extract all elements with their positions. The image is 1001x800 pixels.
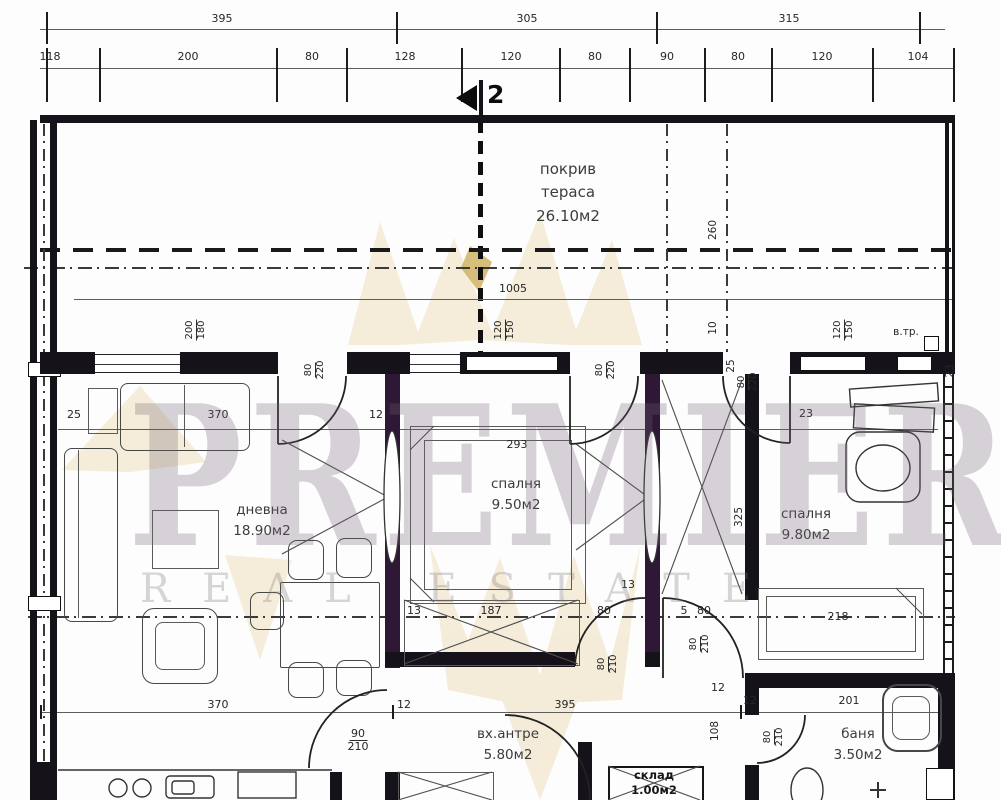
storage-label: склад 1.00м2 xyxy=(631,768,677,798)
dim: 80 xyxy=(597,657,609,672)
storage-area: 1.00м2 xyxy=(631,783,677,798)
dim-370-bottom: 370 xyxy=(208,698,229,711)
door-dim-bed2-entry: 80 210 xyxy=(689,634,711,653)
dim-1005: 1005 xyxy=(499,282,527,295)
dim: 80 xyxy=(763,730,775,745)
bath-cross xyxy=(870,782,886,798)
bath-name: баня xyxy=(834,724,883,745)
dim-218: 218 xyxy=(828,610,849,623)
terrace-label: покрив тераса 26.10м2 xyxy=(536,158,600,228)
terrace-name-1: покрив xyxy=(536,158,600,181)
dim: 80 xyxy=(689,637,701,652)
dim-12a: 12 xyxy=(711,681,725,694)
storage-name: склад xyxy=(631,768,677,783)
stove-burner xyxy=(133,779,151,797)
hall-area: 5.80м2 xyxy=(477,745,539,766)
terrace-name-2: тераса xyxy=(536,181,600,204)
door-dim-bath: 80 210 xyxy=(763,727,785,746)
dim: 210 xyxy=(775,727,786,746)
watermark-premier: PREMIER xyxy=(128,362,1001,591)
kitchen-sink-basin xyxy=(172,781,194,794)
kitchen-cabinet xyxy=(238,772,296,798)
stove-burner xyxy=(109,779,127,797)
bath-label: баня 3.50м2 xyxy=(834,724,883,766)
dim-12-bottom: 12 xyxy=(397,698,411,711)
hall-name: вх.антре xyxy=(477,724,539,745)
dim: 210 xyxy=(609,654,620,673)
window-dim-mid: 120 150 xyxy=(494,319,516,340)
vtr-label: в.тр. xyxy=(893,326,919,338)
door-dim-bed1-entry: 80 210 xyxy=(597,654,619,673)
dim-10: 10 xyxy=(707,321,719,334)
window-dim-left: 200 180 xyxy=(185,319,207,340)
dim-395: 395 xyxy=(555,698,576,711)
window-dim-right: 120 150 xyxy=(833,319,855,340)
door-dim-living-hall: 90 210 xyxy=(348,728,369,753)
dim-25: 25 xyxy=(67,408,81,421)
dim: 120 xyxy=(494,319,506,340)
floor-plan: 395 305 315 118 200 80 128 120 80 90 80 … xyxy=(0,0,1001,800)
dim-260: 260 xyxy=(707,220,719,240)
dim: 150 xyxy=(845,320,856,339)
dim: 210 xyxy=(701,634,712,653)
bath-area: 3.50м2 xyxy=(834,745,883,766)
dim: 200 xyxy=(185,319,197,340)
hall-wardrobe-x xyxy=(398,772,492,800)
bath-sink xyxy=(791,768,823,800)
dim: 120 xyxy=(833,319,845,340)
bed2-corner-fold xyxy=(896,588,922,614)
dim: 180 xyxy=(197,320,208,339)
dim-12b: 12 xyxy=(743,694,757,707)
dim: 150 xyxy=(506,320,517,339)
terrace-area: 26.10м2 xyxy=(536,205,600,228)
dim: 210 xyxy=(348,741,369,753)
hall-label: вх.антре 5.80м2 xyxy=(477,724,539,766)
dim-108: 108 xyxy=(709,721,721,741)
dim-201: 201 xyxy=(839,694,860,707)
watermark-real-estate: REAL ESTATE xyxy=(140,566,783,612)
